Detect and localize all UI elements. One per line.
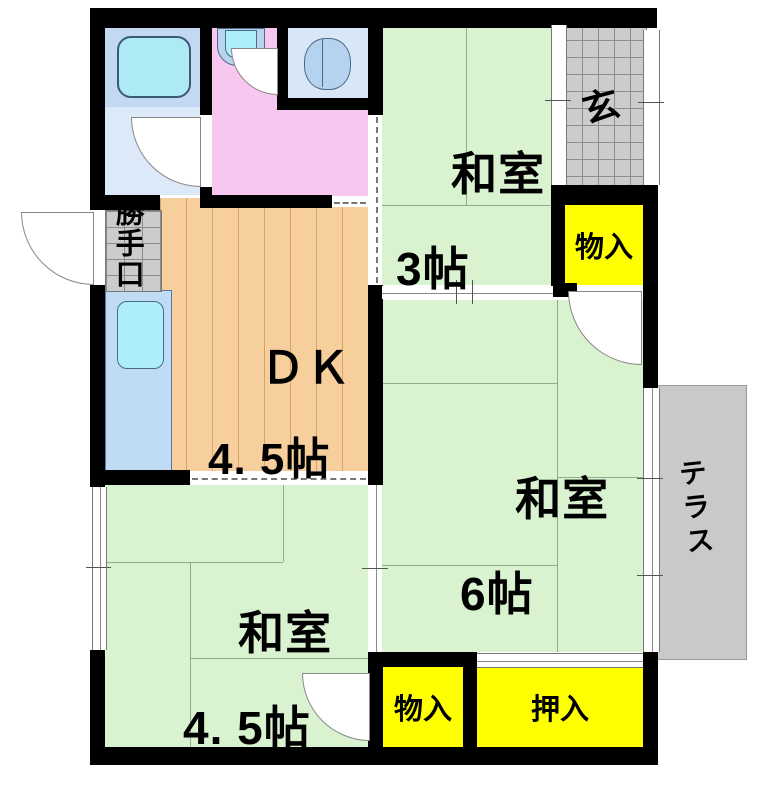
entrance-door [643,30,660,185]
room-name: 和室 [238,607,332,659]
door-opening [200,115,212,187]
window-tick [637,575,663,576]
storage-upper-label: 物入 [565,205,643,285]
room-label-dk: ＤＫ 4. 5帖 [208,300,351,575]
closet-label: 押入 [477,667,643,747]
wall [368,652,383,765]
kitchen-sink [117,301,164,369]
room-size: 3帖 [396,246,545,294]
door-tick [545,100,571,101]
wall [382,652,470,667]
wall [200,28,212,115]
room-label-washitsu-45: 和室 4. 5帖 [183,562,332,800]
wall [90,285,105,487]
wall [643,652,658,765]
toilet-tank-line [322,39,323,87]
window [92,487,107,650]
door-tick [362,568,388,569]
room-size: 6帖 [460,571,609,619]
room-size: 4. 5帖 [208,437,351,483]
window [643,388,660,652]
genkan-sliding-door [551,25,567,185]
wall [368,285,383,485]
window-tick [637,478,663,479]
room-label-washitsu-3: 和室 3帖 [396,103,545,390]
kitchen-door-label: 勝手口 [112,197,142,297]
sliding-door [332,196,368,207]
storage-lower-label: 物入 [383,667,463,747]
wall [368,28,383,115]
floor-plan: 和室 3帖 和室 6帖 和室 4. 5帖 ＤＫ 4. 5帖 玄 物入 物入 押入… [0,0,780,800]
wall [277,98,368,110]
window-tick [86,567,111,568]
bathtub [117,36,191,98]
wall [105,470,190,485]
wall [551,185,658,205]
wall [90,8,657,28]
room-name: ＤＫ [261,344,351,393]
toilet [304,38,351,90]
wall [200,195,332,208]
room-name: 和室 [515,473,609,525]
door-tick [638,102,664,103]
wall [643,185,658,388]
door-swing [21,212,94,285]
room-name: 和室 [451,148,545,200]
wall [90,28,105,210]
sliding-door [369,115,382,285]
room-size: 4. 5帖 [183,705,332,753]
